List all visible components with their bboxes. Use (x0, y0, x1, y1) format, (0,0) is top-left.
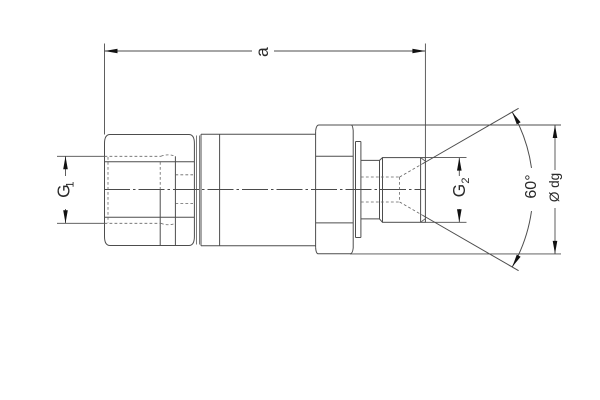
svg-text:60°: 60° (523, 174, 540, 198)
svg-text:G: G (449, 184, 469, 198)
svg-text:1: 1 (65, 181, 77, 187)
svg-text:2: 2 (460, 177, 472, 183)
svg-text:a: a (252, 47, 272, 57)
svg-text:Ø dg: Ø dg (547, 173, 562, 202)
